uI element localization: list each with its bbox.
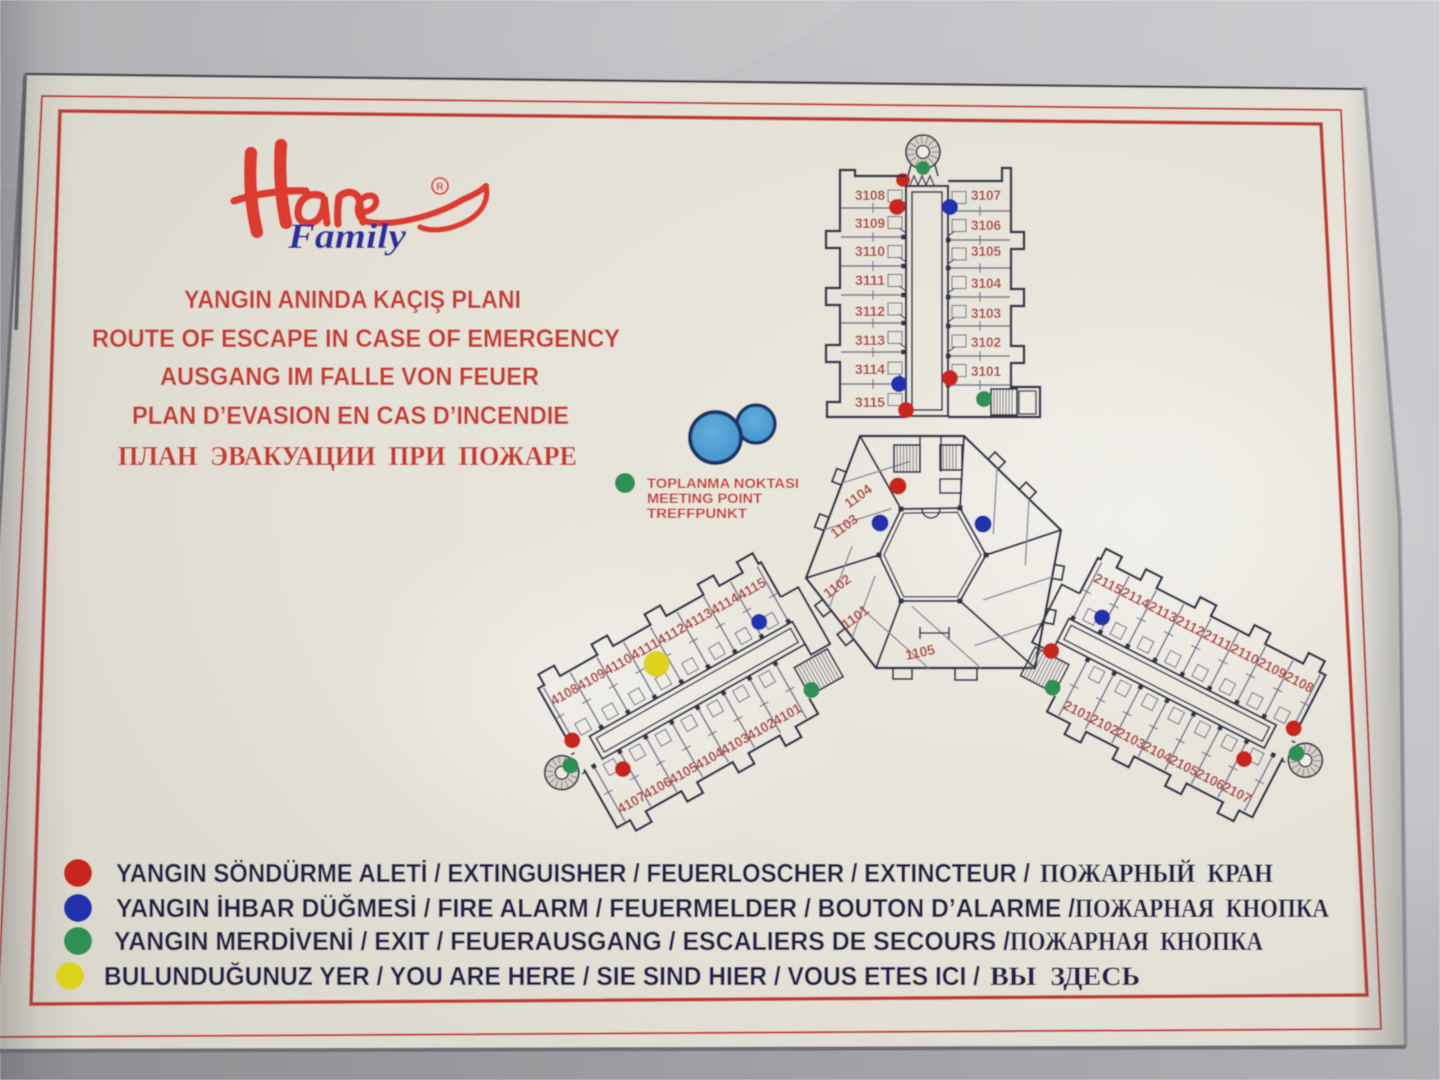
- svg-text:ROUTE OF ESCAPE IN CASE OF EME: ROUTE OF ESCAPE IN CASE OF EMERGENCY: [92, 325, 620, 353]
- svg-text:3101: 3101: [971, 363, 1001, 379]
- svg-text:TOPLANMA NOKTASI: TOPLANMA NOKTASI: [647, 476, 799, 491]
- svg-text:ПЛАН ЭВАКУАЦИИ ПРИ ПОЖАРЕ: ПЛАН ЭВАКУАЦИИ ПРИ ПОЖАРЕ: [118, 441, 577, 471]
- svg-text:R: R: [436, 182, 444, 193]
- svg-text:Family: Family: [287, 216, 407, 256]
- svg-text:3110: 3110: [855, 243, 885, 259]
- svg-text:ПОЖАРНАЯ КНОПКА: ПОЖАРНАЯ КНОПКА: [1075, 894, 1329, 923]
- svg-text:AUSGANG IM FALLE VON FEUER: AUSGANG IM FALLE VON FEUER: [160, 363, 539, 391]
- svg-text:3109: 3109: [855, 215, 885, 231]
- svg-text:3113: 3113: [855, 332, 885, 348]
- svg-text:3111: 3111: [855, 272, 885, 288]
- svg-text:YANGIN SÖNDÜRME ALETİ / EXTING: YANGIN SÖNDÜRME ALETİ / EXTINGUISHER / F…: [116, 858, 1030, 888]
- svg-text:3102: 3102: [971, 334, 1001, 350]
- svg-text:3103: 3103: [971, 305, 1001, 321]
- svg-text:MEETING POINT: MEETING POINT: [647, 491, 763, 506]
- svg-text:ПОЖАРНАЯ КНОПКА: ПОЖАРНАЯ КНОПКА: [1010, 927, 1263, 956]
- svg-text:YANGIN İHBAR DÜĞMESİ / FIRE AL: YANGIN İHBAR DÜĞMESİ / FIRE ALARM / FEUE…: [116, 893, 1075, 923]
- svg-text:3108: 3108: [855, 187, 885, 203]
- svg-text:ПОЖАРНЫЙ КРАН: ПОЖАРНЫЙ КРАН: [1040, 859, 1273, 888]
- svg-text:3105: 3105: [971, 243, 1001, 259]
- svg-text:3106: 3106: [971, 217, 1001, 233]
- svg-text:3107: 3107: [971, 187, 1001, 203]
- svg-text:YANGIN MERDİVENİ / EXIT / FEUE: YANGIN MERDİVENİ / EXIT / FEUERAUSGANG /…: [114, 926, 1010, 956]
- svg-text:YANGIN ANINDA KAÇIŞ PLANI: YANGIN ANINDA KAÇIŞ PLANI: [184, 286, 521, 314]
- svg-text:3112: 3112: [855, 303, 885, 319]
- svg-text:3104: 3104: [971, 275, 1001, 291]
- svg-text:ВЫ ЗДЕСЬ: ВЫ ЗДЕСЬ: [990, 962, 1140, 991]
- svg-text:3114: 3114: [855, 361, 885, 377]
- svg-text:BULUNDUĞUNUZ YER / YOU ARE HER: BULUNDUĞUNUZ YER / YOU ARE HERE / SIE SI…: [104, 961, 980, 991]
- svg-text:3115: 3115: [855, 394, 885, 410]
- svg-text:TREFFPUNKT: TREFFPUNKT: [647, 506, 748, 521]
- svg-text:PLAN D’EVASION EN CAS D’INCEND: PLAN D’EVASION EN CAS D’INCENDIE: [132, 402, 569, 430]
